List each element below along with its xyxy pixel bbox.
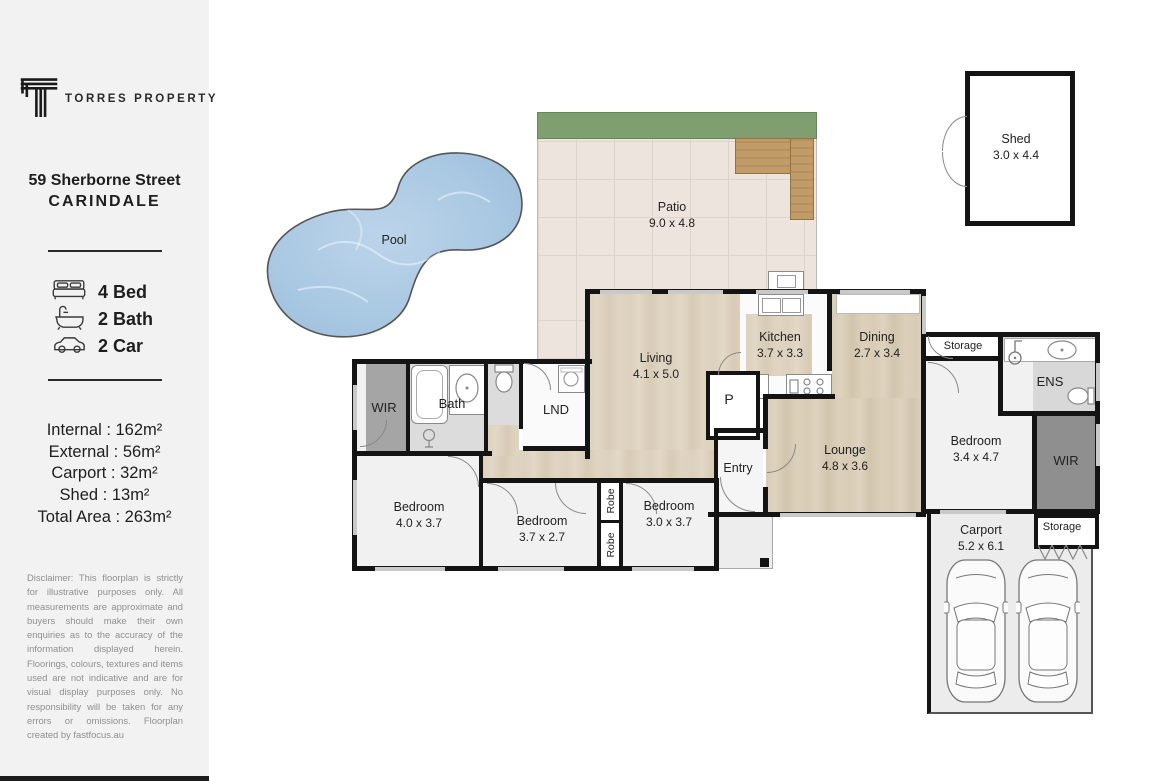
kitchen-sink [758,294,804,316]
feature-beds-label: 4 Bed [98,282,147,303]
address-line1: 59 Sherborne Street [0,172,209,190]
feature-cars-label: 2 Car [98,336,143,357]
brand: TORRES PROPERTY [19,74,199,124]
storage-top-label: Storage [944,338,983,354]
sidebar: TORRES PROPERTY 59 Sherborne Street CARI… [0,0,209,781]
car-icon [52,333,86,360]
sliding-door [780,513,916,517]
room-wir-left-label: WIR [371,400,396,416]
address-line2: CARINDALE [0,193,209,211]
ens-basin [1044,338,1080,362]
porch-step [760,558,769,567]
window [1096,424,1100,466]
area-total: Total Area : 263m² [10,507,199,529]
shed-door [942,152,967,187]
room-patio-label: Patio 9.0 x 4.8 [649,199,695,231]
toilet [492,364,516,394]
room-pantry-label: P [724,391,733,407]
room-dining-label: Dining2.7 x 3.4 [854,329,900,361]
brand-name: TORRES PROPERTY [65,93,218,105]
window [756,290,808,294]
room-ens-label: ENS [1037,374,1064,390]
area-internal: Internal : 162m² [10,420,199,442]
feature-cars: 2 Car [52,333,192,359]
torres-logo-icon [19,74,59,125]
feature-beds: 4 Bed [52,279,192,305]
room-living-label: Living4.1 x 5.0 [633,350,679,382]
window [1096,363,1100,401]
window [375,567,445,571]
area-shed: Shed : 13m² [10,485,199,507]
window [498,567,564,571]
room-carport-label: Carport5.2 x 6.1 [958,522,1004,554]
bed-icon [52,278,86,307]
room-bath-label: Bath [439,396,466,412]
feature-baths: 2 Bath [52,306,192,332]
window [840,290,910,294]
storage-right-label: Storage [1043,519,1082,535]
room-lounge-label: Lounge4.8 x 3.6 [822,442,868,474]
area-external: External : 56m² [10,442,199,464]
deck [790,138,814,220]
bath-icon [52,304,86,335]
window [600,290,652,294]
room-laundry-label: LND [543,402,569,418]
bath-pedestal [420,428,438,450]
floorplan-page: TORRES PROPERTY 59 Sherborne Street CARI… [0,0,1150,781]
garden-strip [537,112,817,139]
ens-shower [1004,336,1026,370]
area-summary: Internal : 162m² External : 56m² Carport… [10,420,199,529]
robe-upper-label: Robe [603,488,619,513]
room-pool-label: Pool [381,232,406,248]
room-bedroom2-label: Bedroom3.7 x 2.7 [517,513,568,545]
car-top-view [944,556,1008,706]
disclaimer-text: Disclaimer: This floorplan is strictly f… [27,571,183,743]
window [632,567,694,571]
ens-toilet [1066,384,1096,408]
room-bedroom3-label: Bedroom3.0 x 3.7 [644,498,695,530]
shed-door [942,116,967,151]
window [353,385,357,430]
patio-extension [537,292,590,360]
robe-lower-label: Robe [603,532,619,557]
divider [48,379,162,381]
room-kitchen-label: Kitchen3.7 x 3.3 [757,329,803,361]
room-bedroom4-label: Bedroom3.4 x 4.7 [951,433,1002,465]
room-bedroom1-label: Bedroom4.0 x 3.7 [394,499,445,531]
window [668,290,723,294]
room-wir-right-label: WIR [1053,453,1078,469]
room-entry-label: Entry [723,460,752,476]
bathtub [411,365,448,424]
car-top-view [1016,556,1080,706]
carport-opening [940,510,1006,514]
room-shed-label: Shed 3.0 x 4.4 [993,131,1039,163]
washer [558,365,585,393]
sidebar-footer-bar [0,776,209,781]
window [922,296,926,334]
area-carport: Carport : 32m² [10,463,199,485]
window [353,480,357,535]
dining-window-seat [836,294,920,314]
feature-baths-label: 2 Bath [98,309,153,330]
divider [48,250,162,252]
